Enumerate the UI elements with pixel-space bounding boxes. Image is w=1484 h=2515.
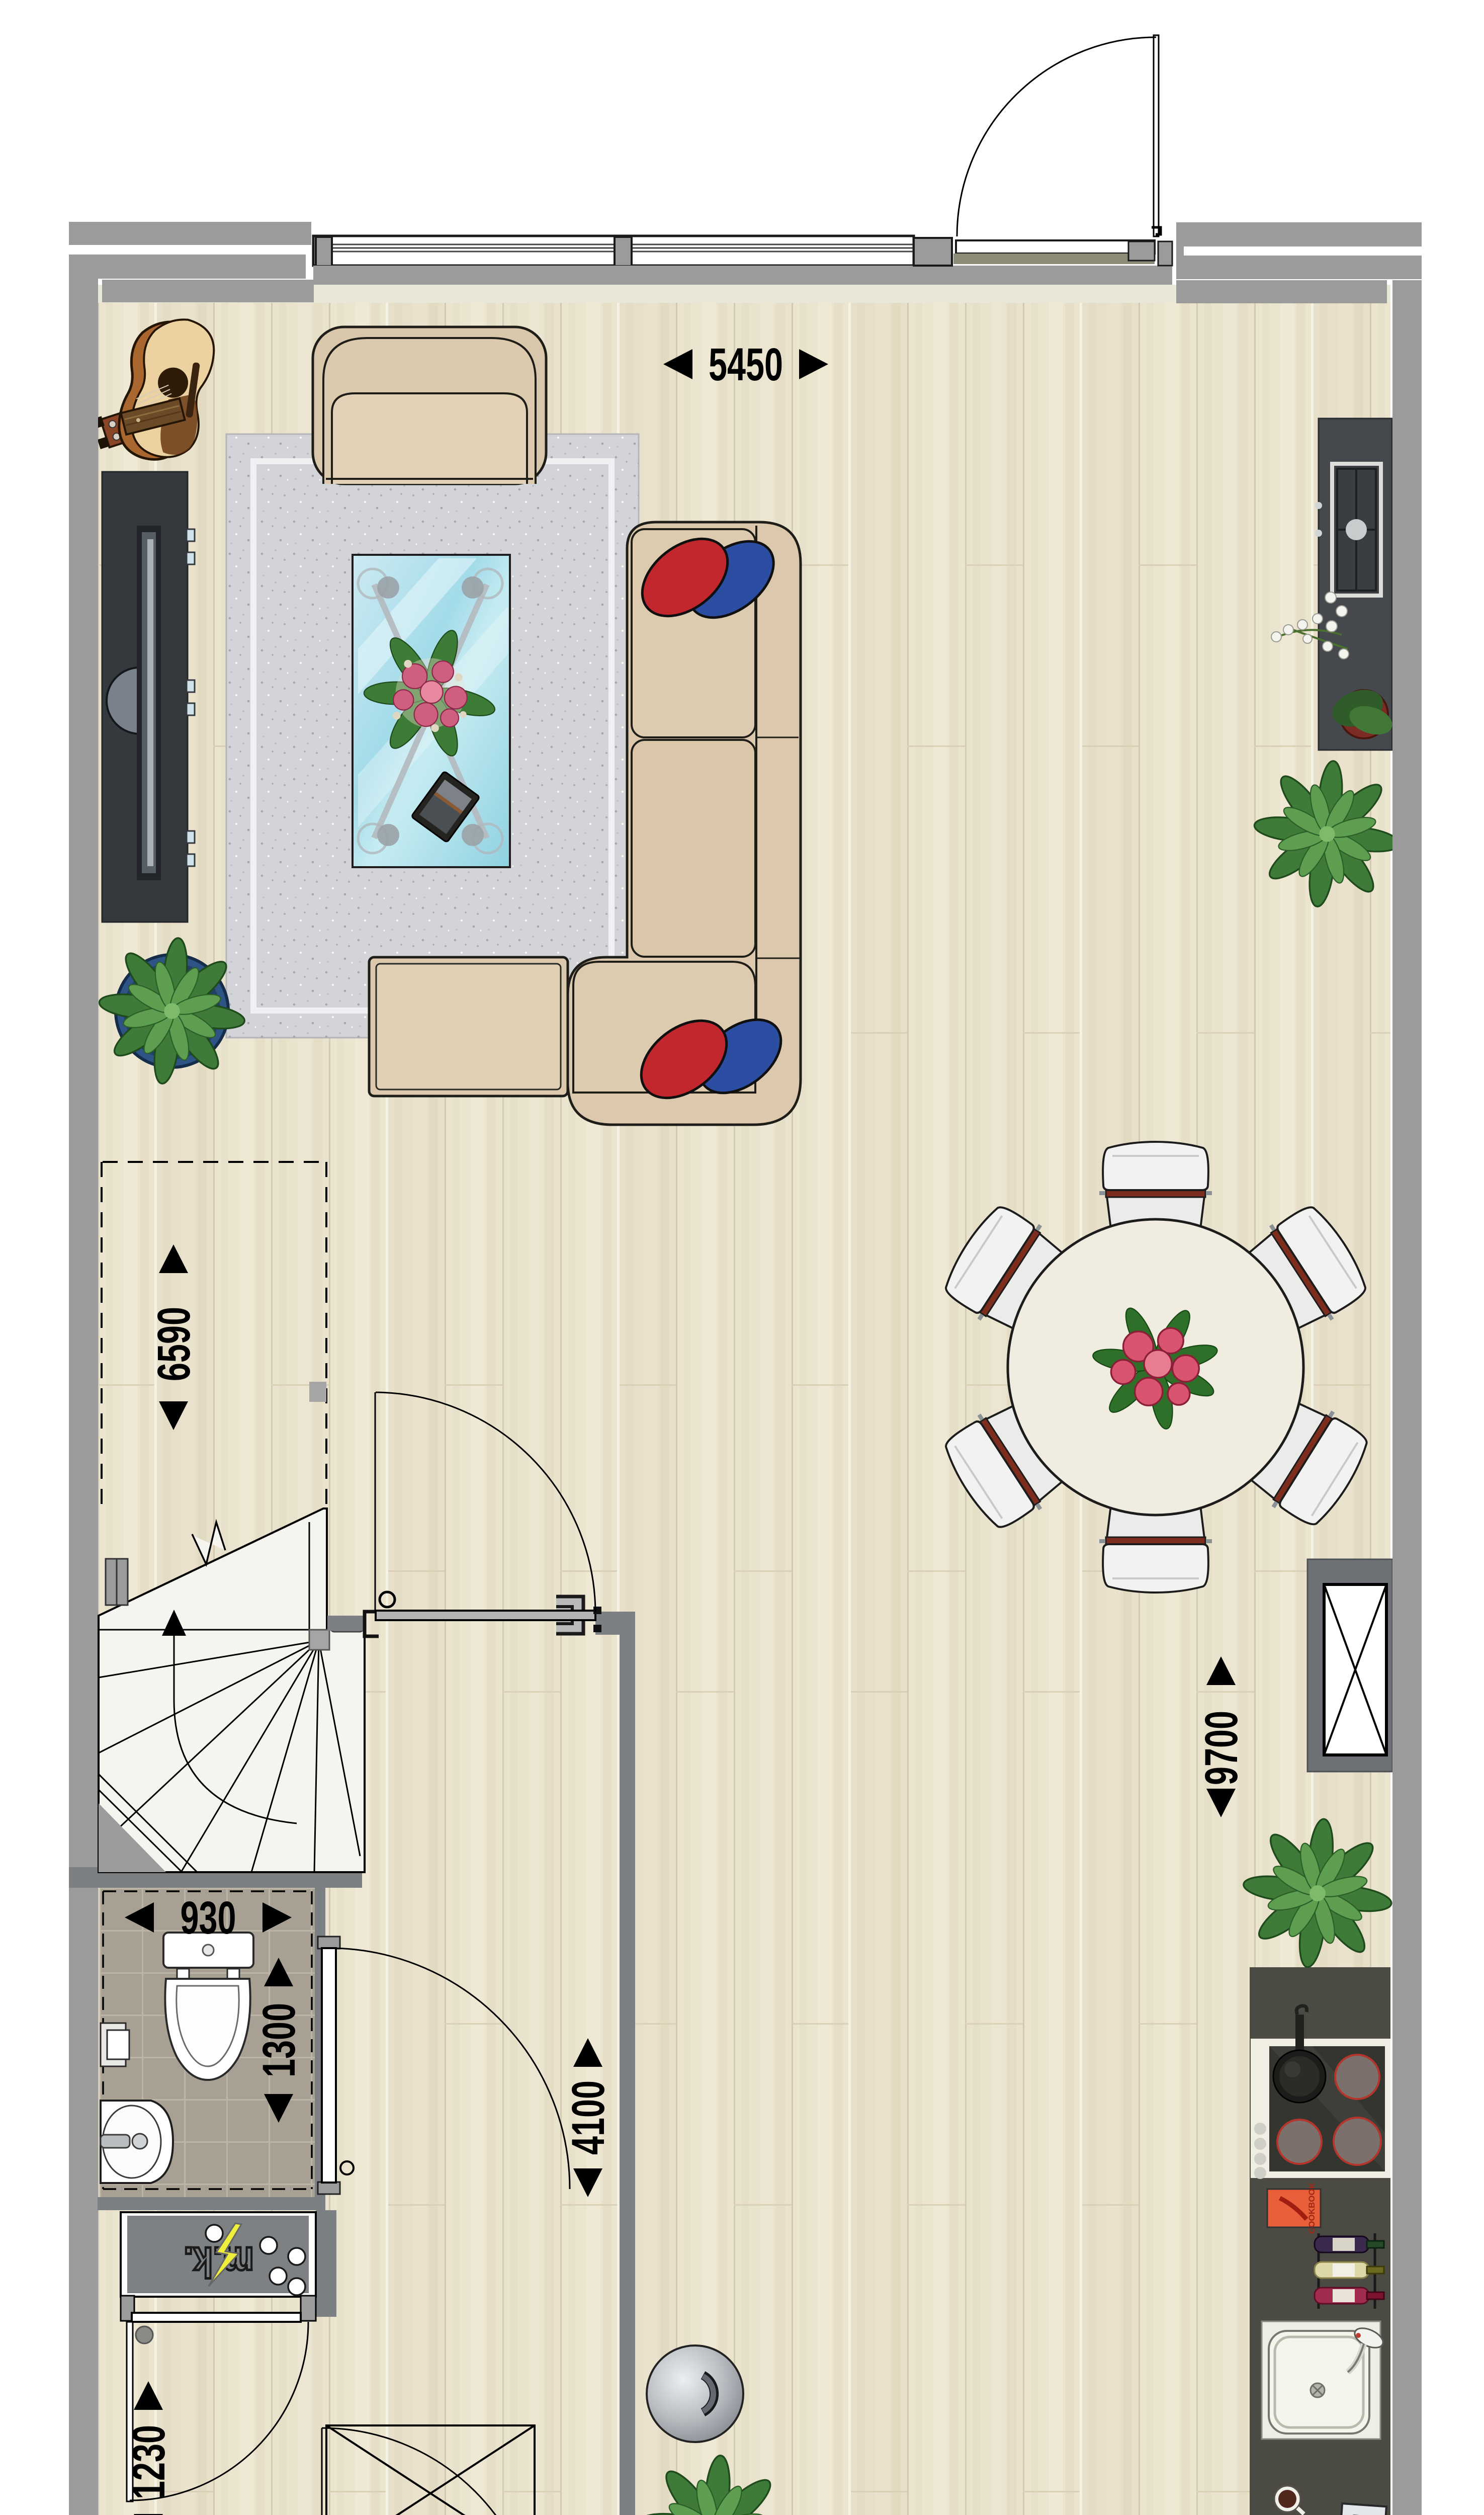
svg-text:m.k.: m.k. [184,2238,254,2286]
svg-text:COOKBOOK: COOKBOOK [1307,2182,1317,2234]
svg-text:4100: 4100 [563,2080,614,2155]
svg-text:930: 930 [181,1892,236,1944]
svg-text:5450: 5450 [709,339,783,390]
svg-text:6590: 6590 [148,1307,200,1381]
svg-text:1300: 1300 [253,2003,305,2077]
svg-text:1230: 1230 [123,2425,174,2499]
svg-text:9700: 9700 [1196,1711,1247,1785]
